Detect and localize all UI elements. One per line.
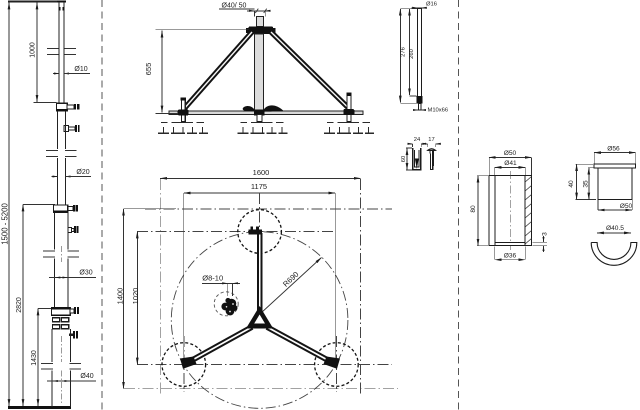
svg-text:260: 260 [409, 49, 415, 59]
svg-text:Ø40.5: Ø40.5 [606, 225, 624, 232]
svg-text:655: 655 [144, 63, 153, 76]
svg-text:60: 60 [401, 156, 407, 162]
svg-text:Ø36: Ø36 [504, 253, 517, 260]
svg-text:Ø20: Ø20 [76, 169, 89, 176]
svg-text:Ø50: Ø50 [620, 203, 633, 210]
svg-text:3: 3 [542, 232, 549, 236]
svg-text:Ø30: Ø30 [79, 270, 92, 277]
svg-text:1400: 1400 [116, 288, 125, 305]
svg-text:Ø40/ 50: Ø40/ 50 [222, 2, 247, 9]
svg-text:Ø40: Ø40 [80, 373, 93, 380]
svg-text:Ø16: Ø16 [426, 2, 437, 8]
svg-text:M10x66: M10x66 [428, 107, 449, 113]
svg-text:Ø50: Ø50 [504, 150, 517, 157]
svg-text:2820: 2820 [16, 297, 23, 313]
svg-text:40: 40 [568, 180, 575, 188]
svg-text:80: 80 [470, 205, 477, 213]
svg-text:1020: 1020 [131, 288, 140, 305]
svg-text:1000: 1000 [30, 42, 37, 58]
svg-text:276: 276 [401, 47, 407, 57]
svg-text:1430: 1430 [31, 350, 38, 366]
svg-text:1600: 1600 [253, 168, 270, 177]
svg-text:Ø41: Ø41 [504, 160, 517, 167]
svg-text:1500 - 5200: 1500 - 5200 [0, 203, 9, 245]
svg-text:17: 17 [428, 137, 434, 143]
svg-text:1175: 1175 [251, 182, 267, 191]
svg-text:Ø56: Ø56 [607, 146, 620, 153]
svg-text:35: 35 [583, 180, 590, 188]
svg-text:24: 24 [414, 137, 421, 143]
svg-text:Ø10: Ø10 [74, 66, 87, 73]
svg-text:Ø8-10: Ø8-10 [202, 274, 223, 283]
